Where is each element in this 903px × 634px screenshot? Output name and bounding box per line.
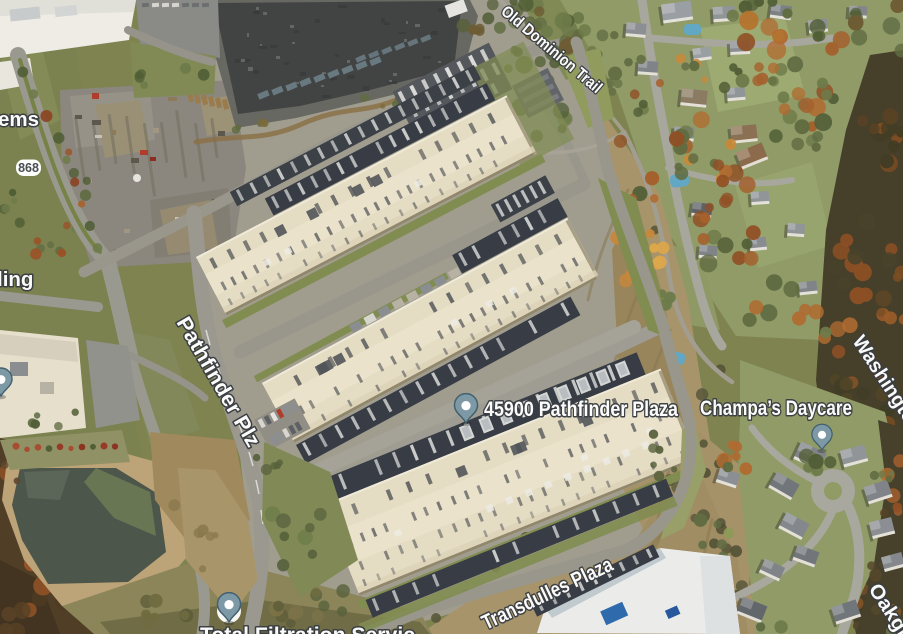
svg-text:Total Filtration Servic: Total Filtration Servic — [200, 624, 415, 634]
svg-text:868: 868 — [18, 161, 39, 175]
svg-text:ems: ems — [0, 108, 39, 131]
svg-text:Champa’s Daycare: Champa’s Daycare — [700, 397, 852, 420]
svg-text:ling: ling — [0, 268, 33, 291]
svg-text:45900 Pathfinder Plaza: 45900 Pathfinder Plaza — [484, 398, 678, 421]
